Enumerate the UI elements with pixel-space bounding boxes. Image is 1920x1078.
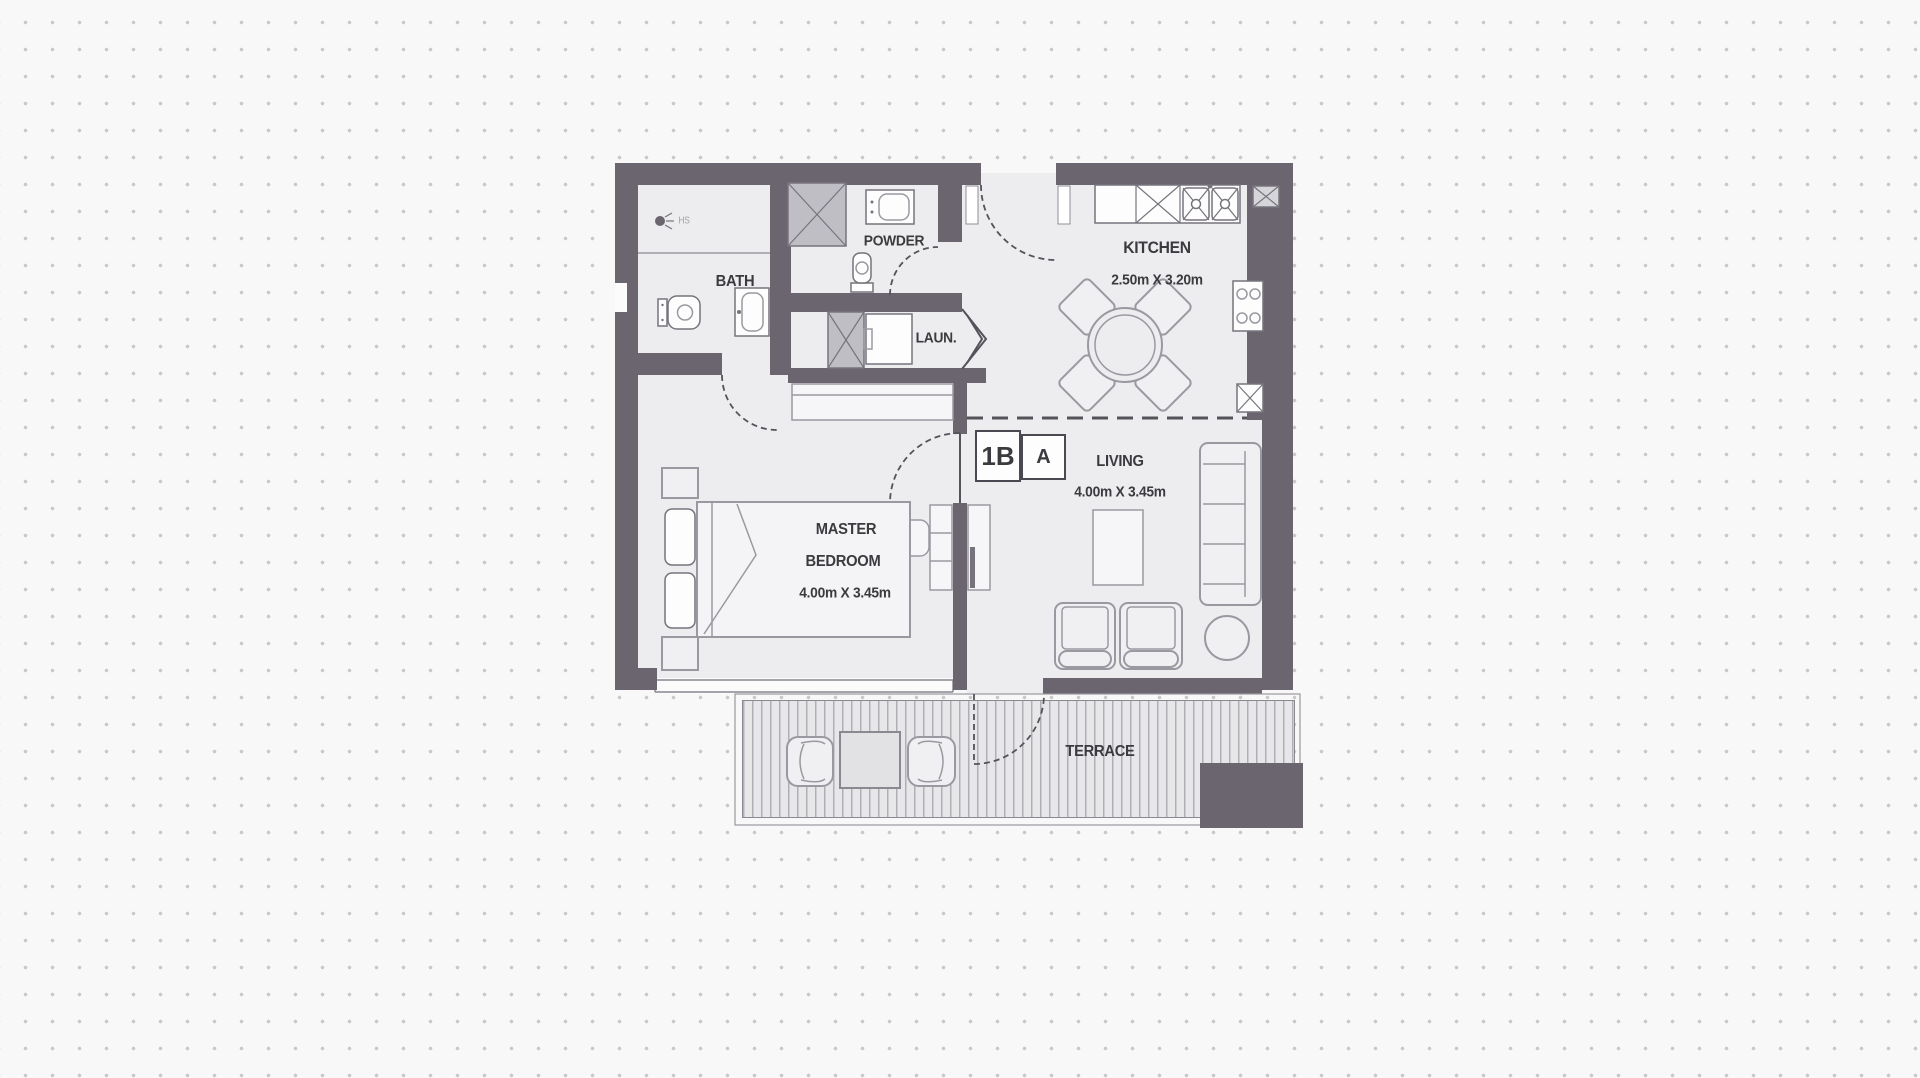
unit-variant-box: A (1021, 434, 1066, 480)
powder-vanity-icon (866, 190, 914, 224)
floor-plan-linework (615, 163, 1305, 843)
armchair (1120, 603, 1182, 669)
bath-vanity-icon (735, 288, 769, 336)
kitchen-label: KITCHEN (1123, 238, 1191, 258)
nightstand (662, 468, 698, 498)
terrace-furniture (787, 732, 955, 788)
side-table (1205, 616, 1249, 660)
shower-tag: HS (678, 216, 689, 227)
terrace-label: TERRACE (1065, 743, 1134, 761)
armchair (1055, 603, 1115, 669)
laundry-label: LAUN. (916, 330, 957, 347)
powder-toilet-icon (851, 253, 873, 292)
kitchen-dimensions: 2.50m X 3.20m (1111, 272, 1203, 289)
powder-label: POWDER (864, 233, 924, 250)
terrace-chair (787, 737, 833, 786)
master-bedroom-label-line1: MASTER (816, 521, 877, 539)
master-bedroom-label-line2: BEDROOM (806, 553, 881, 571)
stove-icon (1233, 281, 1263, 331)
living-dimensions: 4.00m X 3.45m (1074, 484, 1166, 501)
coffee-table (1093, 510, 1143, 585)
dresser (930, 505, 952, 590)
terrace-chair (908, 737, 955, 786)
nightstand (662, 637, 698, 670)
bath-toilet-icon (658, 296, 700, 329)
living-label: LIVING (1096, 453, 1143, 471)
tv-unit (968, 505, 990, 590)
terrace-table (840, 732, 900, 788)
floor-plan: 1B A KITCHEN 2.50m X 3.20m LIVING 4.00m … (615, 163, 1305, 843)
bath-label: BATH (716, 273, 755, 291)
dining-table (1088, 308, 1162, 382)
terrace-corner-block (1200, 763, 1303, 828)
sofa (1200, 443, 1261, 605)
bedroom-window (655, 678, 953, 694)
pillow (665, 509, 695, 565)
terrace-door-arc (974, 694, 1044, 764)
wardrobe (792, 384, 953, 420)
washer-icon (864, 314, 912, 364)
master-bedroom-dimensions: 4.00m X 3.45m (799, 585, 891, 602)
page: { "unit": { "type": "1B", "variant": "A"… (0, 0, 1920, 1078)
pillow (665, 573, 695, 628)
unit-type-box: 1B (975, 430, 1021, 482)
